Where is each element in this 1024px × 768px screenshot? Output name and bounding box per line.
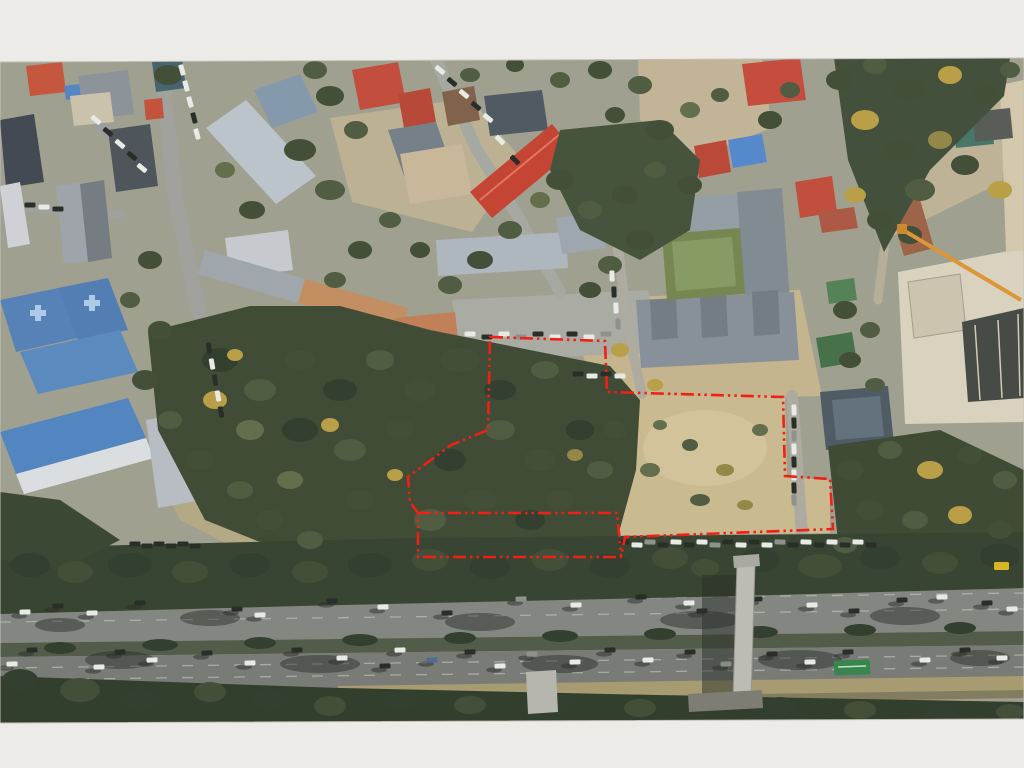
layer-structures	[0, 50, 1024, 740]
printed-aerial-photo-page	[0, 0, 1024, 768]
aerial-photo-scene	[0, 50, 1024, 740]
aerial-photo-svg	[0, 0, 1024, 768]
paper-margin-top	[0, 0, 1024, 61]
paper-margin-bottom	[0, 720, 1024, 768]
photo-wash-overlay	[0, 50, 1024, 740]
